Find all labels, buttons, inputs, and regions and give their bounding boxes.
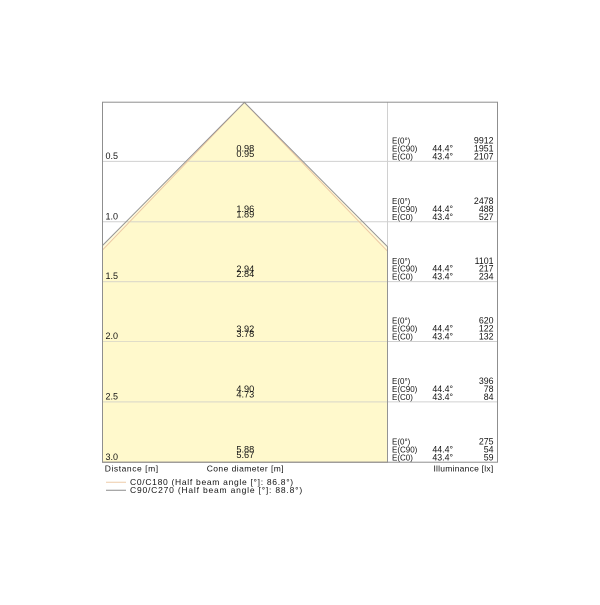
svg-text:43.4°: 43.4° <box>432 392 453 402</box>
svg-text:43.4°: 43.4° <box>432 452 453 462</box>
svg-text:59: 59 <box>484 452 494 462</box>
svg-text:1.0: 1.0 <box>106 211 119 221</box>
svg-text:E(C0): E(C0) <box>392 153 413 162</box>
svg-text:527: 527 <box>479 212 494 222</box>
svg-text:43.4°: 43.4° <box>432 212 453 222</box>
svg-text:E(C0): E(C0) <box>392 213 413 222</box>
svg-text:0.95: 0.95 <box>236 149 254 159</box>
svg-text:43.4°: 43.4° <box>432 152 453 162</box>
svg-text:3.78: 3.78 <box>236 329 254 339</box>
svg-text:2107: 2107 <box>474 152 494 162</box>
svg-text:3.0: 3.0 <box>106 452 119 462</box>
svg-text:2.0: 2.0 <box>106 331 119 341</box>
svg-text:43.4°: 43.4° <box>432 332 453 342</box>
svg-text:84: 84 <box>484 392 494 402</box>
svg-text:Distance [m]: Distance [m] <box>105 464 159 474</box>
svg-text:2.84: 2.84 <box>236 269 254 279</box>
svg-text:Illuminance [lx]: Illuminance [lx] <box>433 464 493 474</box>
svg-text:5.67: 5.67 <box>236 450 254 460</box>
svg-text:1.89: 1.89 <box>236 209 254 219</box>
svg-text:C90/C270 (Half beam angle [°]:: C90/C270 (Half beam angle [°]: 88.8°) <box>130 485 303 495</box>
svg-text:43.4°: 43.4° <box>432 272 453 282</box>
svg-text:E(C0): E(C0) <box>392 393 413 402</box>
svg-text:E(C0): E(C0) <box>392 333 413 342</box>
svg-text:4.73: 4.73 <box>236 390 254 400</box>
svg-text:Cone diameter [m]: Cone diameter [m] <box>207 464 284 474</box>
svg-text:132: 132 <box>479 332 494 342</box>
svg-text:2.5: 2.5 <box>106 392 119 402</box>
svg-text:E(C0): E(C0) <box>392 273 413 282</box>
svg-text:0.5: 0.5 <box>106 151 119 161</box>
svg-text:E(C0): E(C0) <box>392 453 413 462</box>
svg-text:234: 234 <box>479 272 494 282</box>
svg-text:1.5: 1.5 <box>106 271 119 281</box>
